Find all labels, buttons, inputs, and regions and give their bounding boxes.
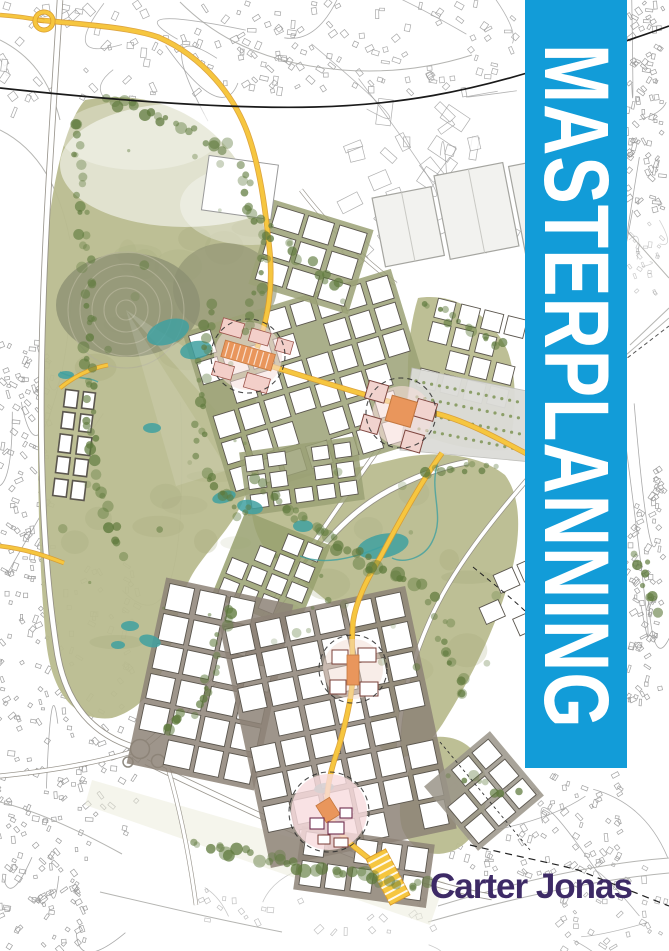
brochure-cover: MASTERPLANNING Carter Jonas xyxy=(0,0,669,951)
title-banner: MASTERPLANNING xyxy=(525,0,627,768)
title-banner-rotated-strip: MASTERPLANNING xyxy=(525,0,627,768)
cover-title: MASTERPLANNING xyxy=(523,44,628,729)
carter-jonas-logo: Carter Jonas xyxy=(430,867,632,907)
